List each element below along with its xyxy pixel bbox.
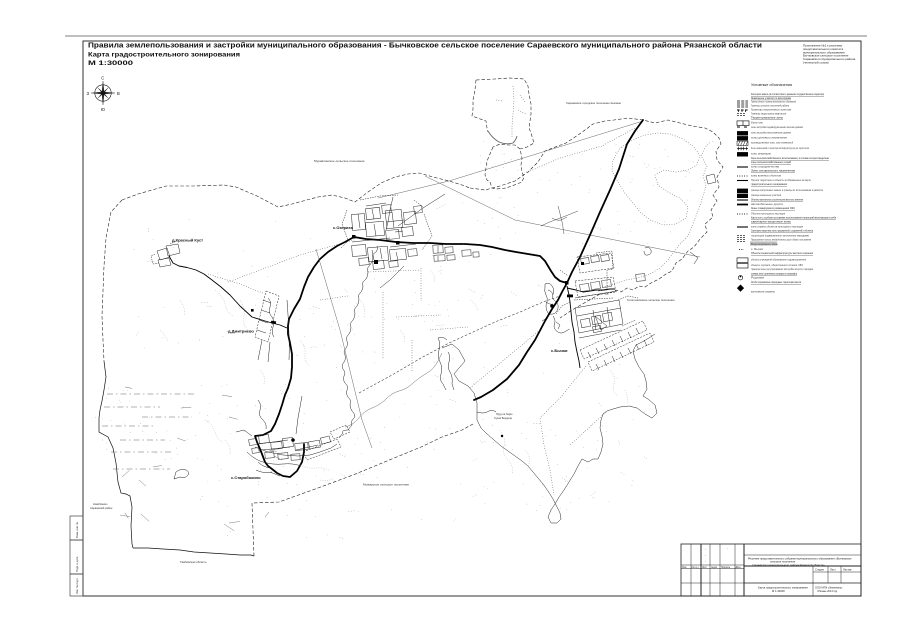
svg-text:Сараевского муниципального р: Сараевского муниципального района Рязанс… [752,563,825,567]
svg-text:зоны военных объектов: зоны военных объектов [751,174,781,178]
svg-text:Родники: Родники [751,276,764,280]
svg-text:Правила землепользования и зас: Правила землепользования и застройки мун… [88,41,762,50]
svg-text:границы земельных участков: границы земельных участков [751,193,781,197]
svg-text:Листов: Листов [843,568,852,572]
svg-text:Телятниковское сельское поселе: Телятниковское сельское поселение [627,298,675,302]
svg-text:граница зоны регулирования зас: граница зоны регулирования застройки вто… [751,267,813,271]
svg-text:Зоны инженерной и транспортной: Зоны инженерной и транспортной инфрастру… [751,146,809,150]
svg-text:Условные обозначения: Условные обозначения [751,83,792,87]
svg-text:Лист: Лист [830,568,836,572]
svg-text:зоны делового назначения: зоны делового назначения [751,136,787,140]
svg-text:градостроительного зонирования: градостроительного зонирования [751,182,787,186]
svg-text:Инв. № подл.: Инв. № подл. [75,578,79,594]
svg-text:М 1:30000: М 1:30000 [772,589,785,593]
svg-text:с.Бычки: с.Бычки [551,348,568,353]
svg-text:-: - [705,547,706,551]
svg-text:-: - [705,553,706,557]
svg-text:(четвертый созыв): (четвертый созыв) [803,61,829,65]
svg-text:Сараевское городское поселение: Сараевское городское поселение Кензино [566,101,622,105]
svg-text:зоны застройки индивидуальными: зоны застройки индивидуальными жилыми до… [751,125,803,129]
svg-text:Стадия: Стадия [815,568,824,572]
svg-text:границы застроенных земель и г: границы застроенных земель и границы их … [751,188,823,192]
svg-text:Сухая Вердица: Сухая Вердица [494,417,512,420]
svg-text:Объекты социальной инфраструкт: Объекты социальной инфраструктуры местно… [751,251,813,255]
svg-text:Новобокино: Новобокино [93,502,108,506]
svg-text:Карта градостроительного зон: Карта градостроительного зонирования [758,586,808,590]
svg-text:Изм: Изм [682,567,687,569]
svg-text:Взам. инв. №: Взам. инв. № [75,522,79,538]
svg-text:Тамбовская область: Тамбовская область [180,560,207,564]
svg-text:с.Озериха: с.Озериха [333,225,354,230]
svg-text:-: - [705,559,706,563]
svg-text:Зоны специального назначения: Зоны специального назначения [751,169,795,173]
svg-text:Санитарно-защитные зоны предпр: Санитарно-защитные зоны предприятий, соо… [751,229,813,233]
svg-text:с.Старобокино: с.Старобокино [231,475,261,480]
svg-text:Решение представительного со: Решение представительного собрания муниц… [748,557,852,561]
svg-text:Муравлянское сельское поселени: Муравлянское сельское поселение [314,159,365,163]
svg-text:Дата: Дата [736,567,742,569]
svg-text:артезианские скважины: артезианские скважины [751,290,775,294]
svg-text:д.Красный Куст: д.Красный Куст [172,238,203,243]
svg-text:д.Дмитриево: д.Дмитриево [228,329,254,334]
svg-text:зоны застройки малоэтажными до: зоны застройки малоэтажными домами [751,131,791,135]
svg-text:Можарское сельское поселение: Можарское сельское поселение [363,483,409,487]
svg-text:зоны сельскохозяйственных угод: зоны сельскохозяйственных угодий [751,160,791,164]
svg-text:Подпись: Подпись [721,567,731,569]
svg-text:Подп. и дата: Подп. и дата [75,556,79,572]
svg-text:производственные зоны, зоны ин: производственные зоны, зоны инженерной [751,141,793,145]
svg-text:Особо охраняемые природные тер: Особо охраняемые природные территории ме… [751,280,801,284]
svg-text:Карта градостроительного зонир: Карта градостроительного зонирования [88,52,240,59]
svg-text:Сараевский район: Сараевский район [90,506,113,510]
svg-text:санитарно-защитные зоны: санитарно-защитные зоны [751,220,791,224]
svg-text:объекты учреждений образования: объекты учреждений образования и здравоо… [751,258,806,262]
svg-text:Зоны планируемого размещения О: Зоны планируемого размещения ОКС [751,206,796,210]
svg-text:Пруд на балке: Пруд на балке [496,413,513,416]
svg-text:г.Рязань 2013 год: г.Рязань 2013 год [817,590,838,593]
svg-text:М 1:30000: М 1:30000 [88,60,134,67]
svg-text:зоны рекреации: зоны рекреации [751,152,771,156]
svg-text:Объекты капитального строитель: Объекты капитального строительства местн… [751,198,803,202]
svg-text:Территориальные зоны: Территориальные зоны [751,115,783,119]
svg-text:Жилые зоны: Жилые зоны [751,121,763,125]
svg-text:С: С [101,76,104,81]
svg-text:Водоохранные зоны: Водоохранные зоны [751,242,778,246]
svg-text:Кол.уч: Кол.уч [692,567,700,569]
svg-text:В: В [117,91,120,96]
svg-text:№док: №док [711,566,718,569]
